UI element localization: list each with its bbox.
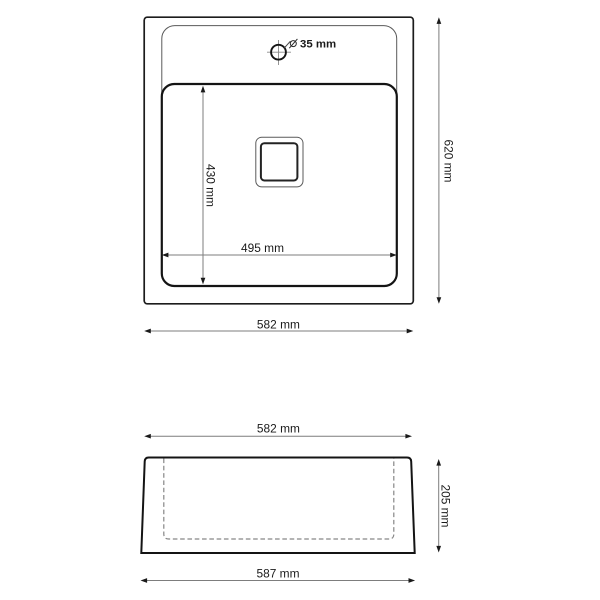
svg-text:205 mm: 205 mm bbox=[439, 485, 453, 528]
svg-text:430 mm: 430 mm bbox=[203, 164, 217, 207]
svg-text:35 mm: 35 mm bbox=[300, 39, 336, 51]
svg-text:620 mm: 620 mm bbox=[441, 140, 455, 183]
svg-text:587 mm: 587 mm bbox=[257, 567, 300, 581]
svg-text:582 mm: 582 mm bbox=[257, 318, 300, 332]
svg-text:495 mm: 495 mm bbox=[241, 241, 284, 255]
svg-text:582 mm: 582 mm bbox=[257, 422, 300, 436]
